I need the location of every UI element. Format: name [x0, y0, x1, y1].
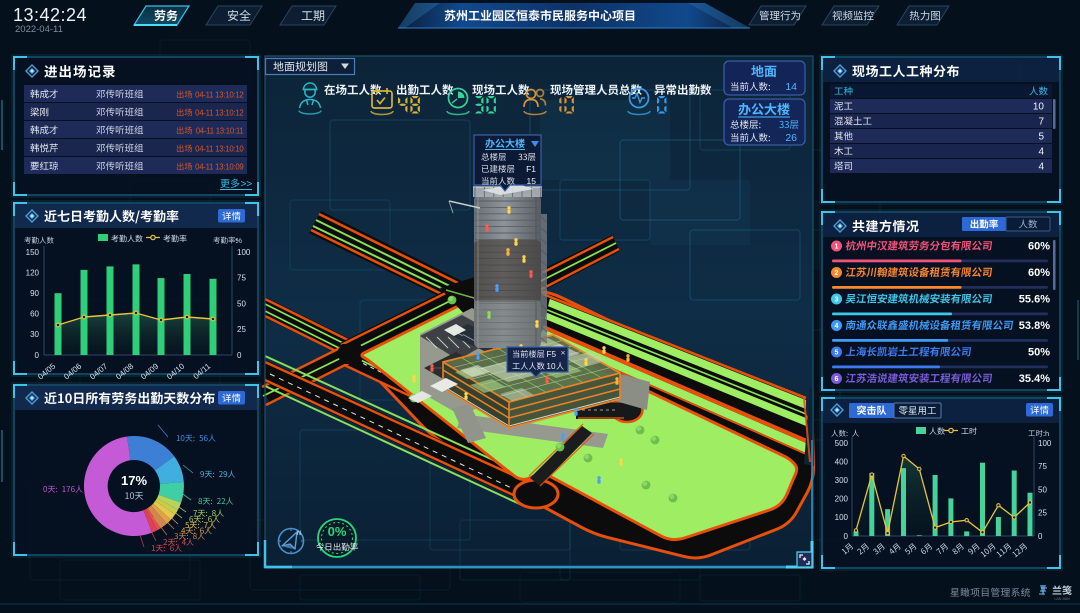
svg-text:150: 150	[26, 248, 40, 257]
svg-text:13:42:24: 13:42:24	[13, 5, 87, 25]
svg-text:500: 500	[835, 439, 849, 448]
svg-text:04-11 13:10:11: 04-11 13:10:11	[196, 127, 244, 136]
svg-text:5: 5	[1038, 132, 1044, 143]
svg-text:0: 0	[35, 351, 40, 360]
svg-text:25: 25	[1038, 509, 1047, 518]
svg-text:7: 7	[1038, 117, 1044, 128]
svg-text:15: 15	[527, 176, 537, 186]
svg-text:h: h	[1045, 429, 1049, 438]
svg-text:100: 100	[1038, 439, 1052, 448]
svg-text:14: 14	[785, 81, 797, 93]
svg-text:2: 2	[835, 270, 839, 277]
svg-text:0: 0	[1038, 532, 1043, 541]
svg-text:26: 26	[785, 132, 797, 144]
svg-text:200: 200	[835, 495, 849, 504]
svg-text:50: 50	[1038, 485, 1047, 494]
svg-text:%: %	[235, 236, 242, 245]
svg-text:0: 0	[237, 351, 242, 360]
svg-text:6: 6	[835, 376, 839, 383]
svg-text:60%: 60%	[1028, 267, 1050, 279]
svg-text:17%: 17%	[121, 473, 147, 488]
svg-text:04-11 13:10:10: 04-11 13:10:10	[195, 145, 244, 154]
svg-text:90: 90	[30, 289, 39, 298]
svg-text:1: 1	[835, 244, 839, 251]
svg-text:50: 50	[237, 299, 246, 308]
svg-text:N: N	[297, 531, 301, 537]
svg-text:300: 300	[835, 476, 849, 485]
svg-text:400: 400	[835, 457, 849, 466]
svg-text:3: 3	[835, 297, 839, 304]
svg-text:0%: 0%	[328, 524, 347, 539]
svg-text:04-11 13:10:09: 04-11 13:10:09	[195, 163, 243, 172]
svg-text:4: 4	[1038, 147, 1044, 158]
svg-text:10: 10	[546, 362, 556, 371]
svg-text:04-11 13:10:12: 04-11 13:10:12	[195, 91, 243, 100]
svg-text:4: 4	[1038, 162, 1044, 173]
svg-text:100: 100	[237, 248, 251, 257]
svg-text:35.4%: 35.4%	[1019, 373, 1050, 385]
svg-text:120: 120	[26, 268, 40, 277]
svg-text:F1: F1	[526, 164, 536, 174]
svg-text:60%: 60%	[1028, 241, 1050, 253]
svg-text:0: 0	[844, 532, 849, 541]
svg-text:5: 5	[835, 350, 839, 357]
svg-text:>>: >>	[241, 179, 253, 190]
svg-text:LAN JIAN: LAN JIAN	[1054, 597, 1070, 601]
svg-text:×: ×	[561, 348, 566, 358]
svg-text:F5: F5	[546, 350, 556, 359]
svg-text:100: 100	[835, 513, 849, 522]
svg-text:75: 75	[1038, 462, 1047, 471]
svg-text:25: 25	[237, 325, 246, 334]
svg-text:04-11 13:10:12: 04-11 13:10:12	[195, 109, 243, 118]
svg-text:30: 30	[30, 330, 39, 339]
svg-text:2022-04-11: 2022-04-11	[15, 24, 63, 35]
svg-text:53.8%: 53.8%	[1019, 320, 1050, 332]
svg-text:55.6%: 55.6%	[1019, 294, 1050, 306]
svg-text:10: 10	[1033, 102, 1045, 113]
svg-text:50%: 50%	[1028, 347, 1050, 359]
svg-text:60: 60	[30, 310, 39, 319]
svg-text:75: 75	[237, 274, 246, 283]
svg-text:4: 4	[835, 323, 839, 330]
